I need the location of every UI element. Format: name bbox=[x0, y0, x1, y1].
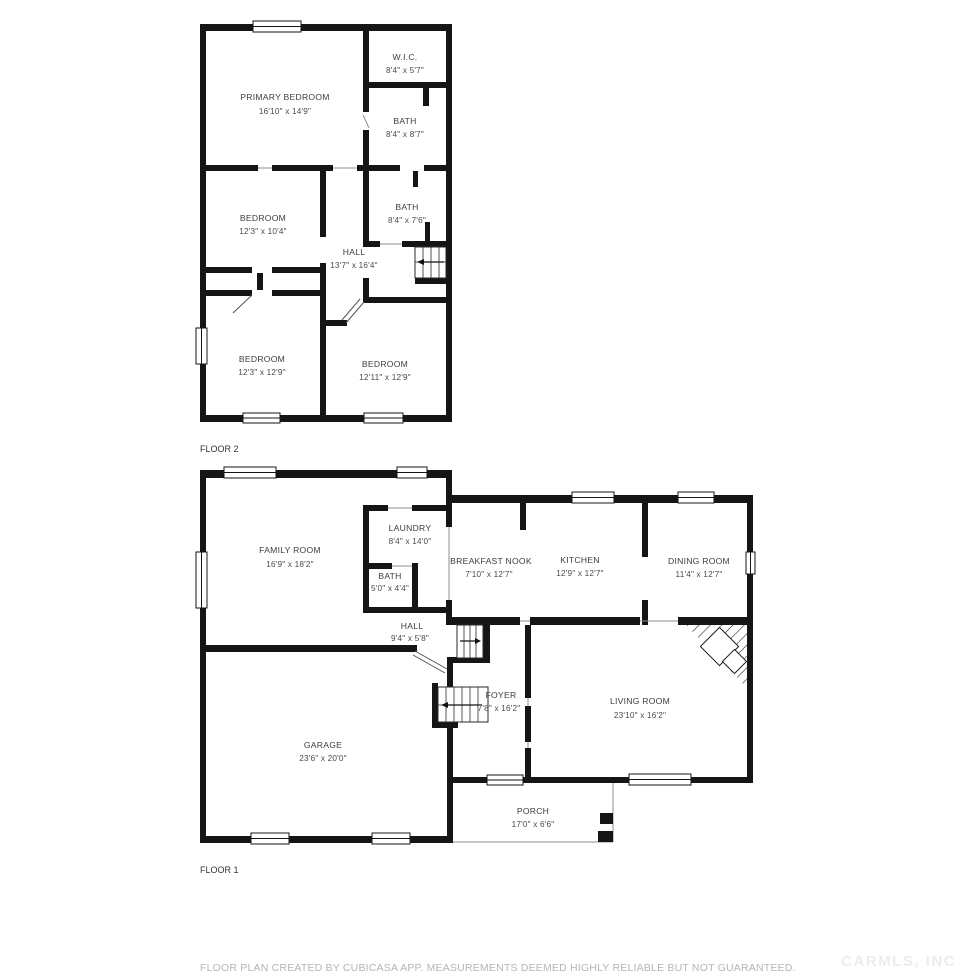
room-dims-hall-floor2: 13'7" x 16'4" bbox=[330, 261, 378, 270]
room-label-dining-room: DINING ROOM bbox=[668, 556, 730, 566]
fireplace-hatch bbox=[686, 625, 747, 688]
room-label-foyer: FOYER bbox=[486, 690, 517, 700]
room-label-garage: GARAGE bbox=[304, 740, 342, 750]
room-dims-family-room: 16'9" x 18'2" bbox=[266, 560, 314, 569]
room-label-porch: PORCH bbox=[517, 806, 549, 816]
window bbox=[364, 413, 403, 423]
room-dims-wic: 8'4" x 5'7" bbox=[386, 66, 424, 75]
room-dims-garage: 23'6" x 20'0" bbox=[299, 754, 347, 763]
room-dims-porch: 17'0" x 6'6" bbox=[512, 820, 555, 829]
window bbox=[243, 413, 280, 423]
porch-step bbox=[598, 831, 613, 842]
window bbox=[196, 552, 207, 608]
window bbox=[678, 492, 714, 503]
footer-disclaimer: FLOOR PLAN CREATED BY CUBICASA APP. MEAS… bbox=[200, 962, 796, 974]
room-label-living-room: LIVING ROOM bbox=[610, 696, 670, 706]
window bbox=[372, 833, 410, 844]
window bbox=[253, 21, 301, 32]
room-label-primary-bedroom: PRIMARY BEDROOM bbox=[240, 92, 329, 102]
floor-1-plan: FAMILY ROOM 16'9" x 18'2" LAUNDRY 8'4" x… bbox=[196, 467, 755, 875]
window bbox=[224, 467, 276, 478]
room-label-bedroom-br: BEDROOM bbox=[362, 359, 408, 369]
room-dims-breakfast-nook: 7'10" x 12'7" bbox=[465, 570, 513, 579]
window bbox=[397, 467, 427, 478]
window bbox=[746, 552, 755, 574]
room-label-bath-mid: BATH bbox=[395, 202, 418, 212]
room-label-breakfast-nook: BREAKFAST NOOK bbox=[450, 556, 532, 566]
room-dims-hall-floor1: 9'4" x 5'8" bbox=[391, 634, 429, 643]
room-dims-dining-room: 11'4" x 12'7" bbox=[676, 570, 723, 579]
floor-2-plan: PRIMARY BEDROOM 16'10" x 14'9" W.I.C. 8'… bbox=[196, 21, 452, 454]
room-dims-bath-mid: 8'4" x 7'6" bbox=[388, 216, 426, 225]
porch-step bbox=[600, 813, 613, 824]
room-label-bedroom-bl: BEDROOM bbox=[239, 354, 285, 364]
room-label-wic: W.I.C. bbox=[393, 52, 418, 62]
room-label-hall-floor2: HALL bbox=[343, 247, 366, 257]
room-dims-laundry: 8'4" x 14'0" bbox=[389, 537, 432, 546]
room-label-family-room: FAMILY ROOM bbox=[259, 545, 321, 555]
room-label-bedroom-mid: BEDROOM bbox=[240, 213, 286, 223]
window bbox=[572, 492, 614, 503]
room-dims-living-room: 23'10" x 16'2" bbox=[614, 711, 666, 720]
room-dims-primary-bedroom: 16'10" x 14'9" bbox=[259, 107, 311, 116]
room-label-bath-upper: BATH bbox=[393, 116, 416, 126]
room-label-hall-floor1: HALL bbox=[401, 621, 424, 631]
floor-2-labels: PRIMARY BEDROOM 16'10" x 14'9" W.I.C. 8'… bbox=[238, 52, 426, 382]
room-dims-bath-floor1: 5'0" x 4'4" bbox=[371, 584, 409, 593]
room-dims-kitchen: 12'9" x 12'7" bbox=[556, 569, 604, 578]
staircase-floor2 bbox=[415, 247, 446, 278]
room-dims-bedroom-bl: 12'3" x 12'9" bbox=[238, 368, 286, 377]
floor-1-title: FLOOR 1 bbox=[200, 865, 239, 875]
room-dims-bedroom-br: 12'11" x 12'9" bbox=[359, 373, 411, 382]
floor-plan-canvas: PRIMARY BEDROOM 16'10" x 14'9" W.I.C. 8'… bbox=[0, 0, 960, 976]
room-label-kitchen: KITCHEN bbox=[560, 555, 599, 565]
watermark: CARMLS, INC bbox=[841, 953, 956, 970]
window bbox=[196, 328, 207, 364]
staircase-hall-up bbox=[457, 625, 483, 658]
window bbox=[251, 833, 289, 844]
window bbox=[487, 775, 523, 785]
room-dims-bedroom-mid: 12'3" x 10'4" bbox=[239, 227, 287, 236]
room-dims-foyer: 7'8" x 16'2" bbox=[478, 704, 521, 713]
room-label-bath-floor1: BATH bbox=[378, 571, 401, 581]
room-dims-bath-upper: 8'4" x 8'7" bbox=[386, 130, 424, 139]
room-label-laundry: LAUNDRY bbox=[389, 523, 432, 533]
floor-2-title: FLOOR 2 bbox=[200, 444, 239, 454]
window bbox=[629, 774, 691, 785]
